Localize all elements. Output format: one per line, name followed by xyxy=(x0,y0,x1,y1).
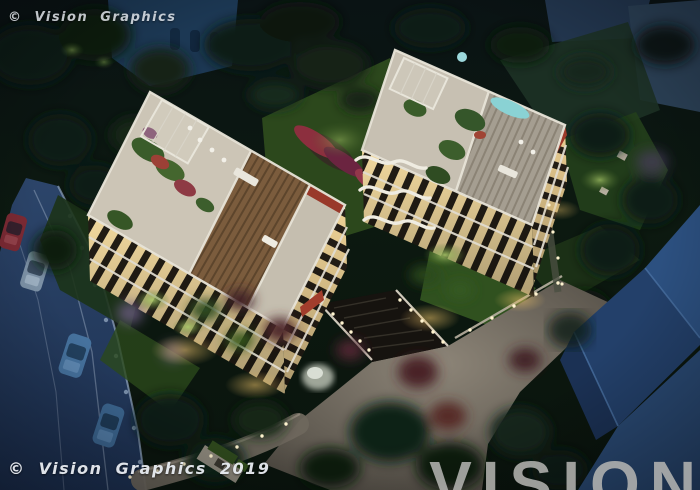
scene-canvas xyxy=(0,0,700,490)
architectural-night-rendering: © Vision Graphics © Vision Graphics 2019… xyxy=(0,0,700,490)
vignette-overlay xyxy=(0,0,700,490)
